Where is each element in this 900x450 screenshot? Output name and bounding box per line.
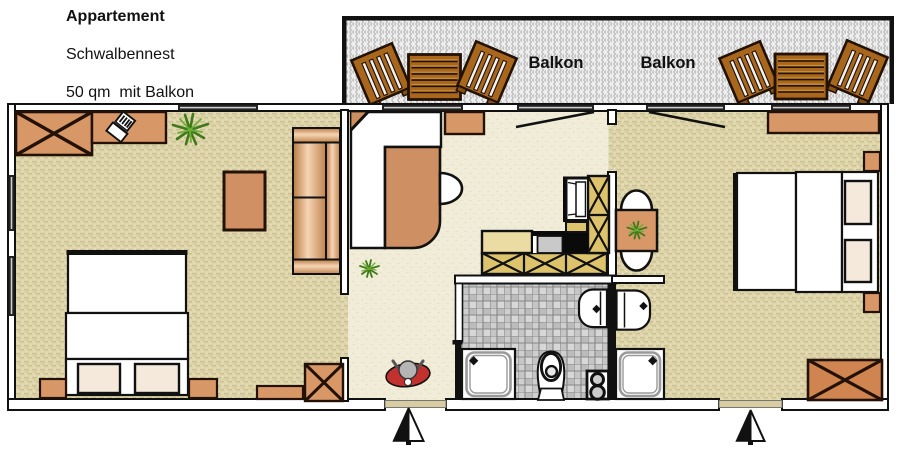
svg-text:Schwalbennest: Schwalbennest	[66, 46, 175, 63]
svg-text:Balkon: Balkon	[528, 54, 583, 72]
svg-text:Appartement: Appartement	[66, 8, 165, 25]
svg-text:Balkon: Balkon	[640, 54, 695, 72]
svg-text:50 qm mit Balkon: 50 qm mit Balkon	[66, 84, 194, 101]
